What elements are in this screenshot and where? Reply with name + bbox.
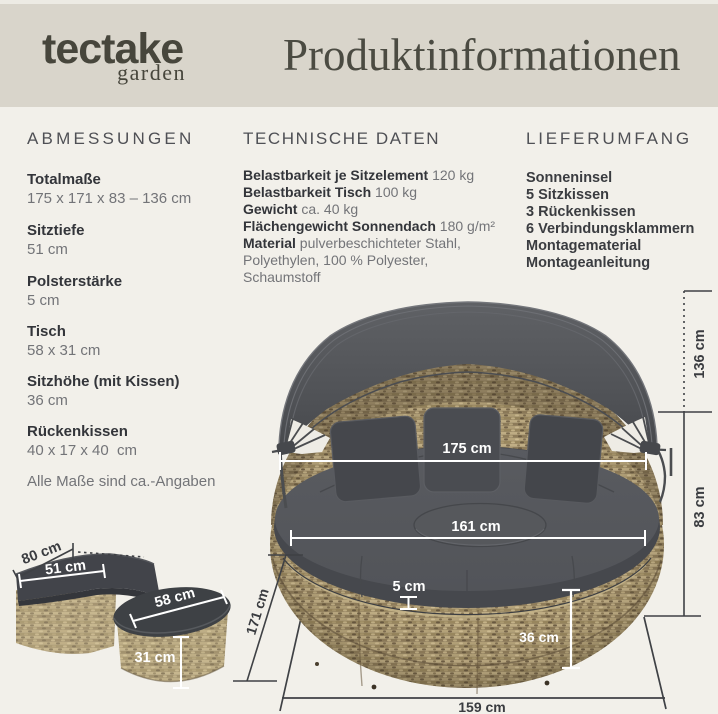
svg-text:161 cm: 161 cm <box>451 519 500 535</box>
svg-text:36 cm: 36 cm <box>519 629 559 645</box>
svg-text:159 cm: 159 cm <box>458 699 505 714</box>
svg-text:83 cm: 83 cm <box>692 486 708 527</box>
svg-text:136 cm: 136 cm <box>692 329 708 378</box>
svg-text:31 cm: 31 cm <box>134 650 175 666</box>
svg-text:175 cm: 175 cm <box>442 441 491 457</box>
svg-text:5 cm: 5 cm <box>392 579 425 595</box>
svg-text:171 cm: 171 cm <box>243 586 272 636</box>
